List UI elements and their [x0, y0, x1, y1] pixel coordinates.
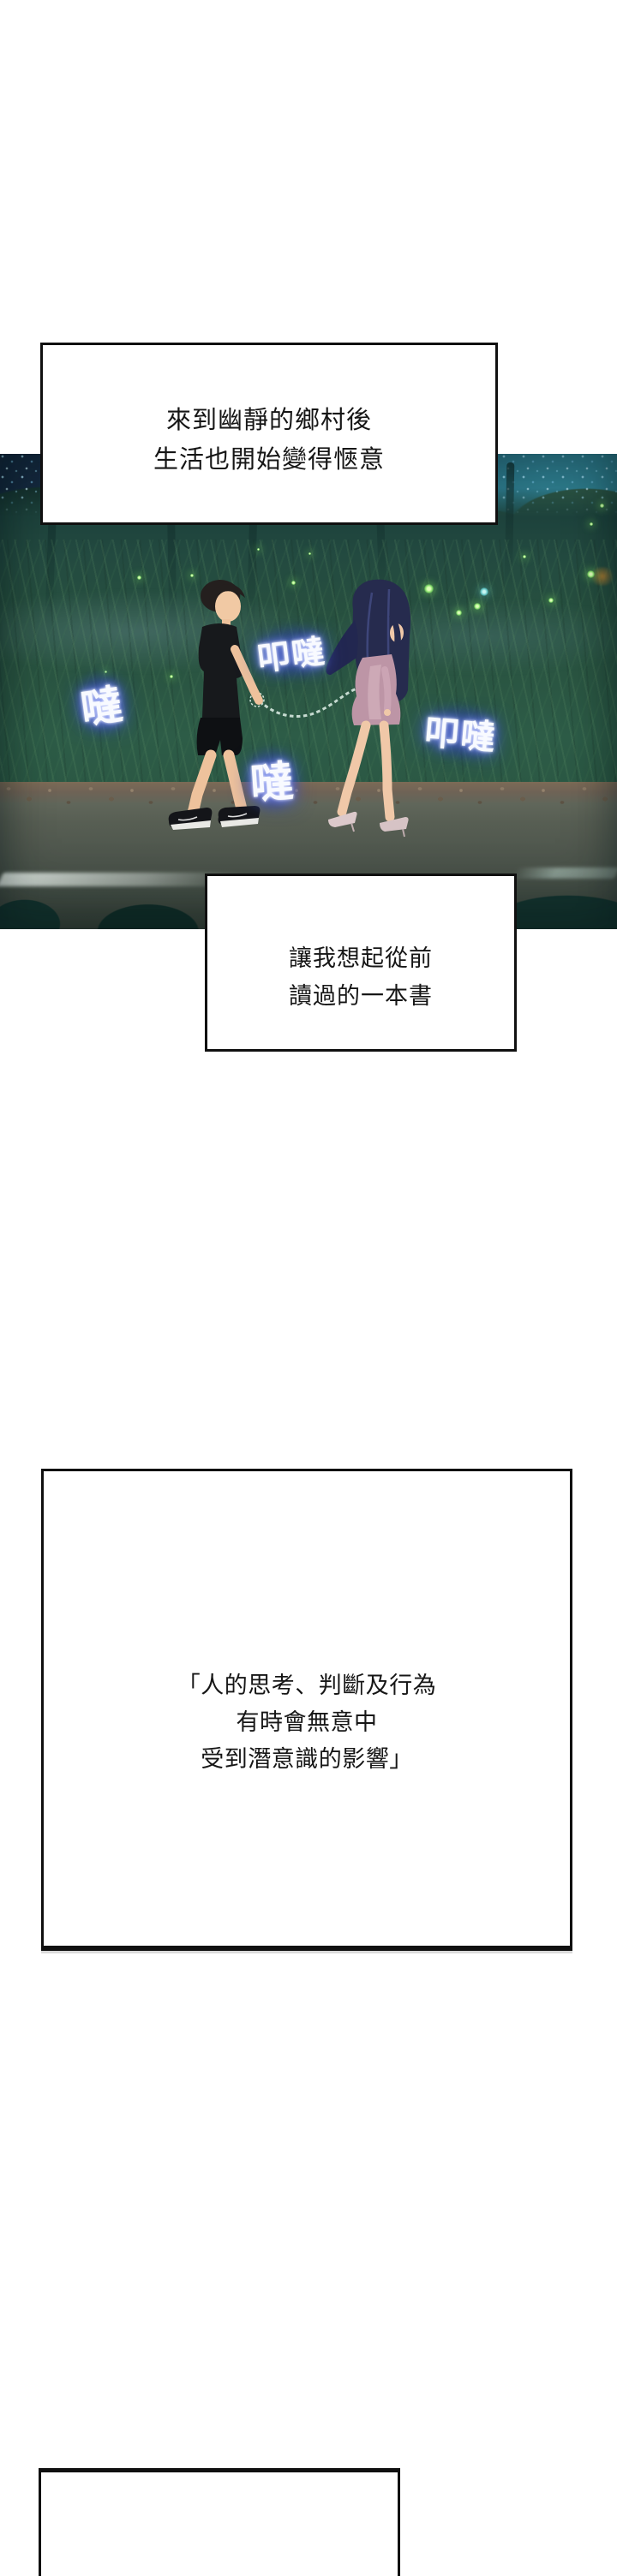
- sfx-clop-sound: 噠: [76, 671, 125, 736]
- caption-box-top: 來到幽靜的鄉村後 生活也開始變得愜意: [40, 343, 498, 525]
- woman-figure: [326, 580, 410, 837]
- sfx-clop-sound: 叩噠: [423, 704, 500, 760]
- panel-night-walk-scene: 叩噠 噠 噠 叩噠: [0, 454, 617, 929]
- caption-line: 來到幽靜的鄉村後: [166, 401, 372, 440]
- caption-box-memory: 讓我想起從前 讀過的一本書: [205, 874, 517, 1052]
- comic-page: 叩噠 噠 噠 叩噠 來到幽靜的鄉村後 生活也開始變得愜意 讓我想起從前 讀過的一…: [0, 0, 617, 2576]
- sfx-clop-sound: 叩噠: [255, 624, 328, 679]
- caption-line: 讀過的一本書: [289, 977, 433, 1015]
- empty-panel-bottom: [39, 2468, 400, 2576]
- quote-line: 「人的思考、判斷及行為: [177, 1667, 437, 1704]
- quote-panel: 「人的思考、判斷及行為 有時會無意中 受到潛意識的影響」: [41, 1469, 572, 1951]
- caption-line: 生活也開始變得愜意: [153, 440, 385, 480]
- sfx-clop-sound: 噠: [249, 747, 296, 811]
- quote-line: 受到潛意識的影響」: [201, 1741, 413, 1778]
- caption-line: 讓我想起從前: [289, 939, 433, 977]
- quote-line: 有時會無意中: [237, 1704, 378, 1741]
